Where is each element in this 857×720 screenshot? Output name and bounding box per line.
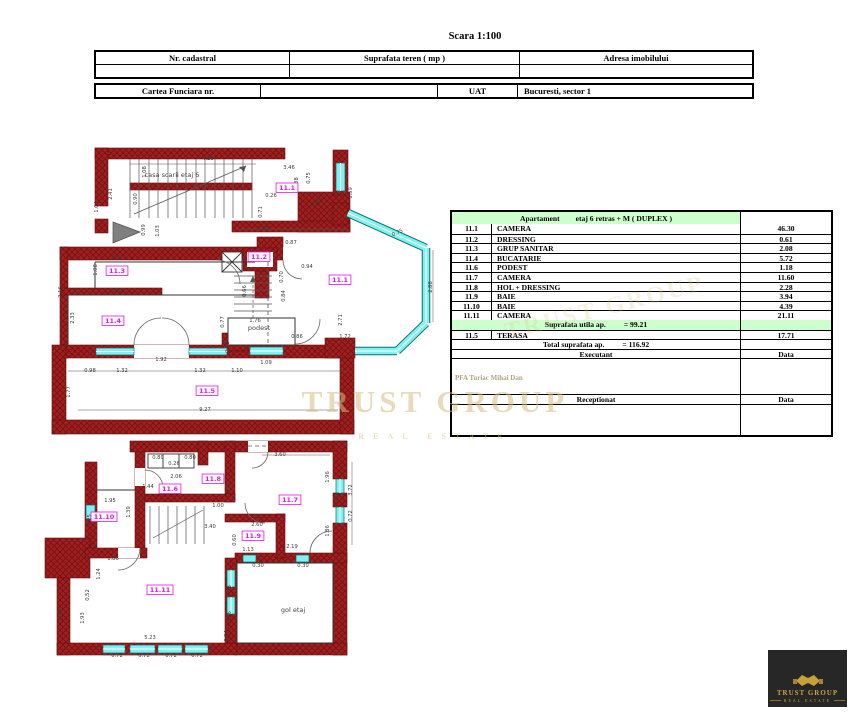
dimension-label: 2.02 xyxy=(111,255,123,261)
logo-subtitle-row: REAL ESTATE xyxy=(770,698,845,703)
dimension-label: 2.06 xyxy=(170,474,182,480)
room-label: 11.11 xyxy=(150,586,171,594)
dimension-label: 1.59 xyxy=(348,187,354,199)
dimension-label: 2.51 xyxy=(226,481,232,493)
stair-direction-arrowhead xyxy=(239,166,246,172)
dimension-label: 0.98 xyxy=(84,368,96,374)
dimension-label: 1.10 xyxy=(231,368,243,374)
dimension-label: 3.46 xyxy=(283,165,295,171)
dimension-label: 0.66 xyxy=(242,285,248,297)
north-arrow xyxy=(113,222,140,243)
dimension-label: 1.92 xyxy=(155,357,167,363)
dimension-label: 1.86 xyxy=(107,556,119,562)
dimension-label: 4.29 xyxy=(202,156,214,162)
room-label: 11.9 xyxy=(245,532,262,540)
room-label: 11.7 xyxy=(282,496,298,504)
dimension-label: 0.72 xyxy=(191,653,203,659)
dimension-label: 0.72 xyxy=(111,653,123,659)
room-label: 11.3 xyxy=(109,267,125,275)
dimension-label: 1.03 xyxy=(155,225,161,237)
dimension-label: 0.94 xyxy=(301,264,313,270)
trust-group-logo: TRUST GROUP REAL ESTATE xyxy=(768,650,847,707)
dimension-label: 0.75 xyxy=(306,172,312,184)
dimension-label: 0.30 xyxy=(297,563,309,569)
dimension-label: 5.23 xyxy=(144,635,156,641)
dimension-label: 2.39 xyxy=(110,288,122,294)
dimension-label: 0.90 xyxy=(133,193,139,205)
dimension-label: 2.88 xyxy=(428,281,434,293)
room-label: 11.1 xyxy=(279,184,296,192)
dimension-label: 1.86 xyxy=(325,525,331,537)
logo-subtitle: REAL ESTATE xyxy=(784,698,831,703)
dimension-label: 1.08 xyxy=(93,264,99,276)
gol-etaj-outline xyxy=(237,563,333,643)
handshake-icon xyxy=(792,672,824,689)
room-label: 11.8 xyxy=(205,475,222,483)
lower-plan xyxy=(45,441,352,655)
dimension-label: 2.19 xyxy=(286,544,298,550)
dimension-label: 0.84 xyxy=(281,290,287,302)
room-label: 11.4 xyxy=(105,317,122,325)
room-label: 11.10 xyxy=(94,513,115,521)
dimension-label: 0.80 xyxy=(152,455,164,461)
dimension-label: 3.40 xyxy=(204,524,216,530)
dimension-label: 1.44 xyxy=(142,484,154,490)
document-page: Scara 1:100 Nr. cadastral Suprafata tere… xyxy=(0,0,857,720)
dimension-label: 2.71 xyxy=(338,314,344,326)
dimension-label: 1.13 xyxy=(138,495,144,507)
dimension-label: 1.74 xyxy=(59,609,65,621)
plan-annotation: gol etaj xyxy=(281,606,306,614)
dimension-label: 0.72 xyxy=(348,510,354,522)
dimension-label: 0.28 xyxy=(335,492,341,504)
dimension-label: 3.08 xyxy=(257,226,269,232)
logo-rule-right xyxy=(834,700,845,701)
dimension-label: 1.09 xyxy=(260,360,272,366)
dimension-label: 0.70 xyxy=(279,271,285,283)
dimension-label: 1.13 xyxy=(242,547,254,553)
dimension-label: 1.24 xyxy=(96,568,102,580)
floor-plans-drawing: 4.291.082.411.040.903.081.593.840.991.03… xyxy=(0,0,857,720)
dimension-label: 0.99 xyxy=(141,224,147,236)
dimension-label: 1.96 xyxy=(325,471,331,483)
dimension-label: 0.60 xyxy=(232,534,238,546)
dimension-label: 1.93 xyxy=(80,612,86,624)
dimension-label: 1.77 xyxy=(66,386,72,398)
dimension-label: 0.87 xyxy=(285,240,297,246)
logo-rule-left xyxy=(770,700,781,701)
room-label: 11.1 xyxy=(332,276,349,284)
dimension-label: 1.04 xyxy=(94,201,100,213)
dimension-label: 3.72 xyxy=(348,484,354,496)
dimension-label: 0.30 xyxy=(252,563,264,569)
dimension-label: 1.21 xyxy=(251,514,263,520)
dimension-label: 0.71 xyxy=(258,206,264,218)
dimension-label: 2.16 xyxy=(58,286,64,298)
plan-annotation: casa scarii etaj 6 xyxy=(145,171,200,179)
dimension-label: 4.28 xyxy=(227,585,233,597)
dimension-label: 3.60 xyxy=(274,452,286,458)
dimension-label: 0.24 xyxy=(224,630,230,642)
dimension-label: 9.27 xyxy=(199,407,211,413)
dimension-label: 0.77 xyxy=(220,316,226,328)
dimension-label: 0.86 xyxy=(291,334,303,340)
dimension-label: 1.00 xyxy=(212,503,224,509)
dimension-label: 0.52 xyxy=(85,589,91,601)
room-label: 11.2 xyxy=(251,253,267,261)
dimension-label: 0.72 xyxy=(165,653,177,659)
dimension-label: 0.26 xyxy=(265,193,277,199)
dimension-label: 2.33 xyxy=(70,312,76,324)
dimension-label: 0.73 xyxy=(225,341,231,353)
dimension-label: 0.96 xyxy=(227,611,233,623)
dimension-label: 2.60 xyxy=(251,522,263,528)
lower-stair-treads-up xyxy=(150,506,204,544)
dimension-label: 0.80 xyxy=(184,455,196,461)
dimension-label: 1.32 xyxy=(194,368,206,374)
room-label: 11.6 xyxy=(162,485,179,493)
dimension-label: 1.32 xyxy=(116,368,128,374)
dimension-label: 0.26 xyxy=(168,461,180,467)
dimension-label: 2.41 xyxy=(108,188,114,200)
logo-title: TRUST GROUP xyxy=(777,689,838,697)
dimension-label: 0.72 xyxy=(138,653,150,659)
dimension-label: 1.39 xyxy=(126,506,132,518)
plan-annotation: podest xyxy=(248,324,271,332)
dimension-label: 1.72 xyxy=(339,334,351,340)
room-label: 11.5 xyxy=(199,387,216,395)
dimension-label: 1.95 xyxy=(104,498,116,504)
upper-plan-labels: 4.291.082.411.040.903.081.593.840.991.03… xyxy=(58,156,434,413)
